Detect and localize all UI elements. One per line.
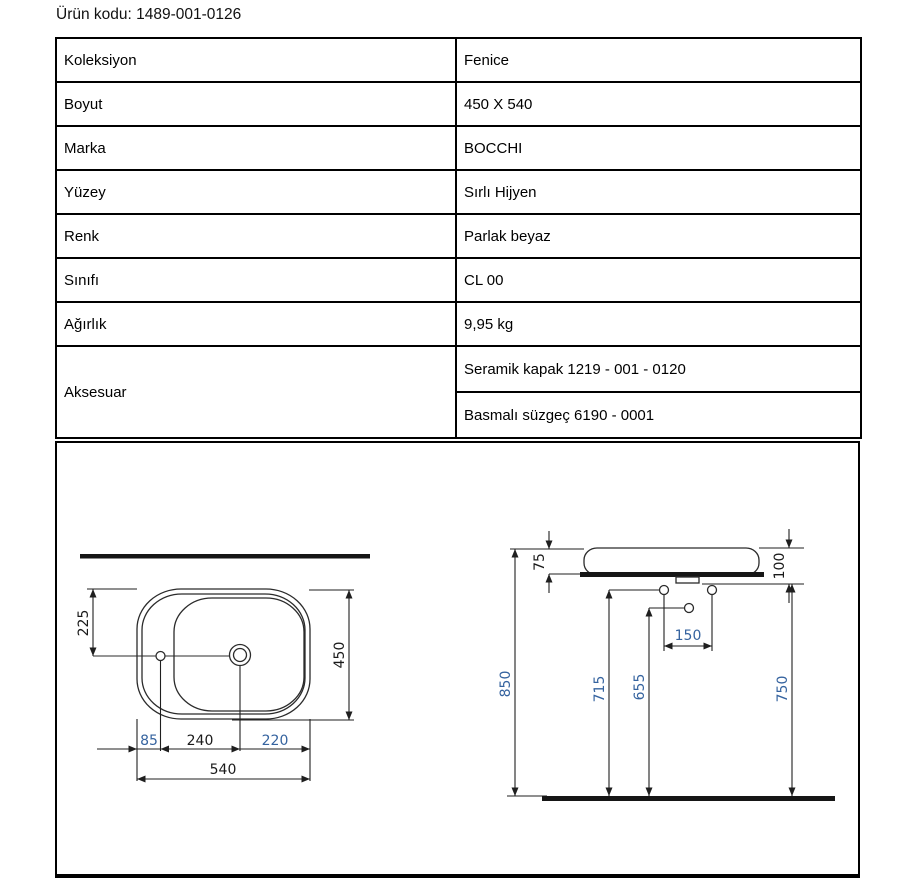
dim-label-750: 750 <box>775 676 791 703</box>
table-row: Koleksiyon Fenice <box>56 38 861 82</box>
table-row: Renk Parlak beyaz <box>56 214 861 258</box>
spec-label: Aksesuar <box>56 346 456 438</box>
drain-fitting <box>676 577 699 583</box>
table-row: Aksesuar Seramik kapak 1219 - 001 - 0120 <box>56 346 861 392</box>
dim-label-75: 75 <box>532 553 548 571</box>
technical-drawing-panel: 225 450 85 240 220 <box>55 441 860 878</box>
spec-value: Parlak beyaz <box>456 214 861 258</box>
sink-rim-outline <box>142 594 305 714</box>
wall-line <box>80 554 370 559</box>
dim-label-715: 715 <box>592 676 608 703</box>
product-code-title: Ürün kodu: 1489-001-0126 <box>56 6 241 24</box>
supply-connection-right <box>708 586 717 595</box>
table-row: Sınıfı CL 00 <box>56 258 861 302</box>
spec-label: Sınıfı <box>56 258 456 302</box>
dim-label-240: 240 <box>187 733 214 749</box>
table-row: Marka BOCCHI <box>56 126 861 170</box>
dim-label-225: 225 <box>76 610 92 637</box>
spec-label: Renk <box>56 214 456 258</box>
spec-table: Koleksiyon Fenice Boyut 450 X 540 Marka … <box>55 37 862 439</box>
spec-value: Seramik kapak 1219 - 001 - 0120 <box>456 346 861 392</box>
dim-label-150: 150 <box>675 628 702 644</box>
spec-value: 9,95 kg <box>456 302 861 346</box>
spec-label: Marka <box>56 126 456 170</box>
dim-label-100: 100 <box>772 553 788 580</box>
table-row: Ağırlık 9,95 kg <box>56 302 861 346</box>
spec-label: Yüzey <box>56 170 456 214</box>
spec-value: BOCCHI <box>456 126 861 170</box>
table-row: Yüzey Sırlı Hijyen <box>56 170 861 214</box>
dim-label-85: 85 <box>140 733 158 749</box>
spec-sheet-page: Ürün kodu: 1489-001-0126 Koleksiyon Feni… <box>0 0 908 879</box>
basin-profile <box>584 548 759 575</box>
drain-connection <box>685 604 694 613</box>
top-view-drawing: 225 450 85 240 220 <box>76 554 370 781</box>
spec-label: Ağırlık <box>56 302 456 346</box>
faucet-hole <box>156 652 165 661</box>
supply-connection-left <box>660 586 669 595</box>
spec-label: Koleksiyon <box>56 38 456 82</box>
dim-label-450: 450 <box>332 642 348 669</box>
spec-value: CL 00 <box>456 258 861 302</box>
spec-label: Boyut <box>56 82 456 126</box>
dim-label-540: 540 <box>210 762 237 778</box>
spec-value: 450 X 540 <box>456 82 861 126</box>
spec-value: Basmalı süzgeç 6190 - 0001 <box>456 392 861 438</box>
technical-drawing: 225 450 85 240 220 <box>57 443 858 870</box>
drain-hole-inner <box>234 649 247 662</box>
side-view-drawing: 75 100 850 715 655 7 <box>498 529 835 801</box>
dim-label-655: 655 <box>632 674 648 701</box>
dim-label-850: 850 <box>498 671 514 698</box>
table-row: Boyut 450 X 540 <box>56 82 861 126</box>
floor-line <box>542 796 835 801</box>
dim-label-220: 220 <box>262 733 289 749</box>
spec-value: Fenice <box>456 38 861 82</box>
countertop <box>580 572 764 577</box>
spec-value: Sırlı Hijyen <box>456 170 861 214</box>
